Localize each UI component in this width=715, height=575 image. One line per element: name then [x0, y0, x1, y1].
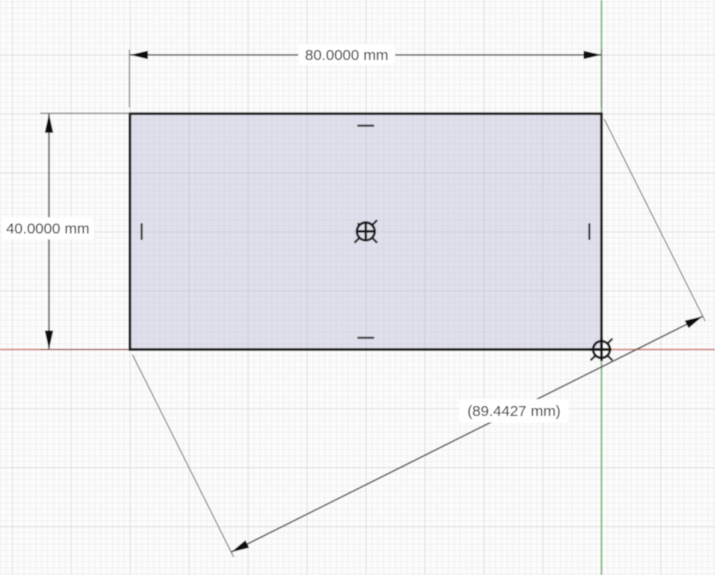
svg-text:(89.4427 mm): (89.4427 mm) — [467, 403, 560, 420]
svg-text:40.0000 mm: 40.0000 mm — [6, 221, 89, 238]
svg-text:80.0000 mm: 80.0000 mm — [305, 47, 388, 64]
